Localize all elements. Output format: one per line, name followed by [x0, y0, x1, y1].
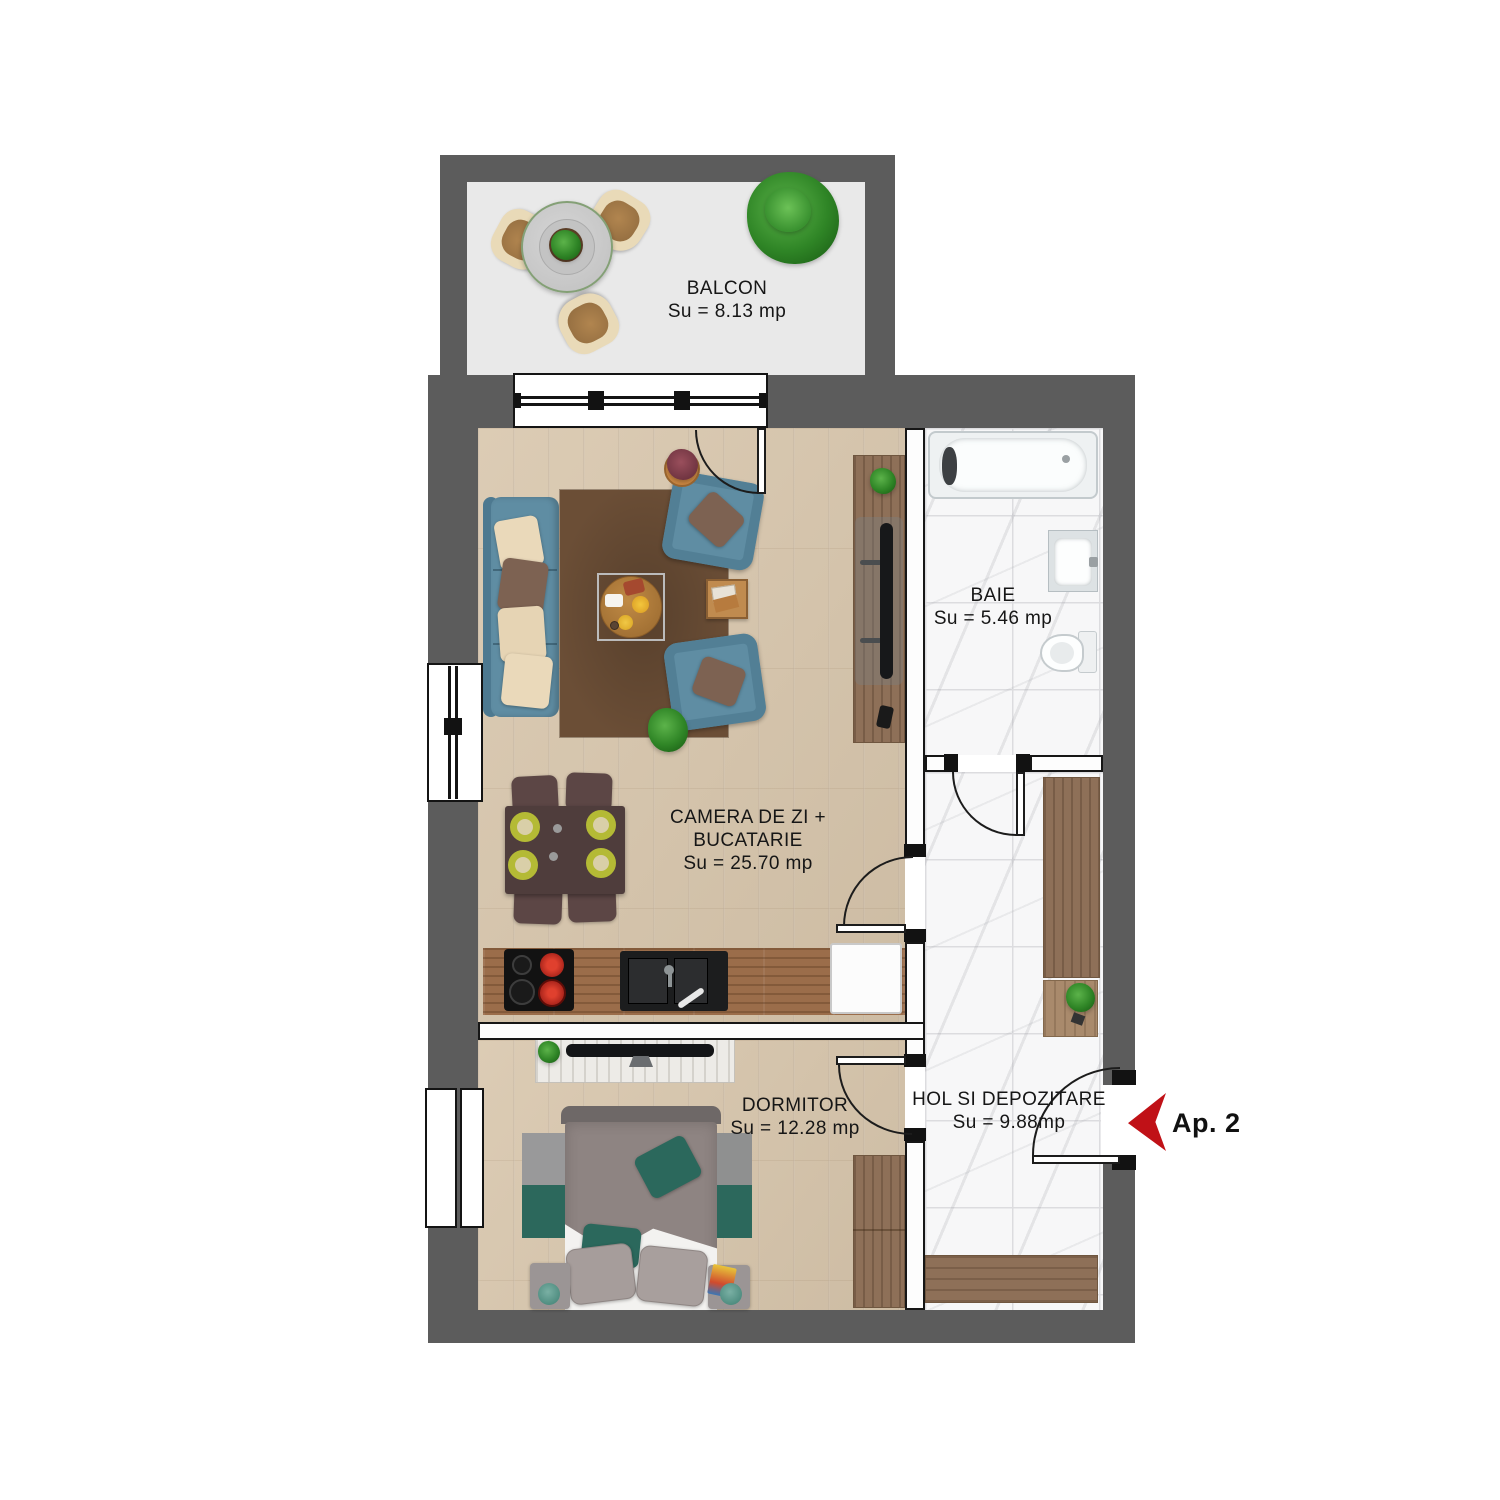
- toilet-seat: [1050, 642, 1074, 664]
- balcony-window: [513, 373, 768, 428]
- wall-living-bedroom: [478, 1022, 925, 1040]
- sink-basin: [1054, 538, 1092, 586]
- kitchen-appliance: [830, 943, 902, 1014]
- plate: [586, 848, 616, 878]
- sink-basin: [628, 958, 668, 1004]
- window-mullion: [588, 391, 604, 410]
- armchair-pillow: [691, 655, 748, 708]
- burner-hot: [538, 979, 566, 1007]
- toilet-bowl: [1040, 634, 1084, 672]
- bedroom-wardrobe: [853, 1155, 905, 1308]
- room-name: BAIE: [934, 584, 1052, 607]
- dresser-plant: [538, 1041, 560, 1063]
- window-rail: [516, 396, 765, 399]
- entrance-door-leaf: [1032, 1155, 1120, 1164]
- door-post: [1016, 754, 1030, 772]
- room-area: Su = 12.28 mp: [730, 1117, 859, 1140]
- balcony-door-leaf: [757, 428, 766, 494]
- wall-bottom: [428, 1310, 1135, 1343]
- room-label-living: CAMERA DE ZI + BUCATARIE Su = 25.70 mp: [670, 806, 826, 875]
- window-mullion: [674, 391, 690, 410]
- bedroom-window-pane: [460, 1088, 484, 1228]
- bed-pillow-gray: [635, 1245, 708, 1308]
- room-label-dormitor: DORMITOR Su = 12.28 mp: [730, 1094, 859, 1140]
- window-endcap: [759, 393, 766, 408]
- bathtub-faucet: [1062, 455, 1070, 463]
- living-door-leaf: [836, 924, 906, 933]
- wall-living-bath: [905, 428, 925, 846]
- fruit-bowl: [632, 596, 649, 613]
- bathroom-sink: [1048, 530, 1098, 592]
- armchair-pillow: [686, 489, 747, 550]
- room-name: BALCON: [668, 277, 786, 300]
- nightstand-lamp: [720, 1283, 742, 1305]
- window-endcap: [514, 393, 521, 408]
- floor-plant: [648, 708, 688, 752]
- nightstand-lamp: [538, 1283, 560, 1305]
- room-name: BUCATARIE: [670, 829, 826, 852]
- chair-seat: [562, 297, 613, 348]
- kitchen-sink: [620, 951, 728, 1011]
- cooktop: [504, 949, 574, 1011]
- room-label-hol: HOL SI DEPOZITARE Su = 9.88mp: [912, 1088, 1106, 1134]
- plate: [510, 812, 540, 842]
- plate: [508, 850, 538, 880]
- bathroom-door-leaf: [1016, 772, 1025, 836]
- table-plant: [667, 449, 698, 480]
- room-name: HOL SI DEPOZITARE: [912, 1088, 1106, 1111]
- hall-storage: [925, 1255, 1098, 1303]
- wall-bedroom-hall: [905, 1141, 925, 1310]
- room-area: Su = 9.88mp: [912, 1111, 1106, 1134]
- bedroom-tv: [566, 1044, 714, 1057]
- door-post: [904, 844, 926, 857]
- burner: [512, 955, 532, 975]
- bathtub: [928, 431, 1098, 499]
- bedroom-door-leaf: [836, 1056, 906, 1065]
- burner-hot: [540, 953, 564, 977]
- floor-plan-canvas: BALCON Su = 8.13 mp CAMERA DE ZI + BUCAT…: [0, 0, 1500, 1500]
- faucet-spout: [668, 973, 672, 987]
- bedroom-window-pane: [425, 1088, 457, 1228]
- room-label-balcon: BALCON Su = 8.13 mp: [668, 277, 786, 323]
- room-area: Su = 25.70 mp: [670, 852, 826, 875]
- door-post: [904, 929, 926, 942]
- serving-plate: [605, 594, 623, 607]
- burner: [509, 979, 535, 1005]
- room-area: Su = 5.46 mp: [934, 607, 1052, 630]
- sofa-pillow: [500, 653, 553, 710]
- door-post: [944, 754, 958, 772]
- bathtub-headrest: [942, 447, 957, 485]
- bathtub-basin: [939, 438, 1087, 492]
- plate: [586, 810, 616, 840]
- coffee-cup: [610, 621, 619, 630]
- wall-right: [1103, 375, 1135, 1343]
- fruit-bowl: [618, 615, 633, 630]
- window-rail: [516, 403, 765, 406]
- bed-pillow-gray: [565, 1242, 637, 1306]
- bed: [561, 1106, 721, 1310]
- cup: [553, 824, 562, 833]
- hall-wardrobe: [1043, 777, 1100, 978]
- room-area: Su = 8.13 mp: [668, 300, 786, 323]
- apartment-label: Ap. 2: [1172, 1108, 1241, 1139]
- window-mullion: [444, 718, 462, 735]
- balcony-plant-leaves: [765, 188, 811, 232]
- tv-arm: [860, 560, 882, 565]
- faucet: [1089, 557, 1098, 567]
- potted-plant: [551, 230, 581, 260]
- console-plant: [870, 468, 896, 494]
- hall-plant: [1066, 983, 1095, 1012]
- room-label-baie: BAIE Su = 5.46 mp: [934, 584, 1052, 630]
- tv-glass-panel: [855, 517, 903, 685]
- tv-arm: [860, 638, 882, 643]
- tv-screen: [880, 523, 893, 679]
- sofa: [483, 497, 559, 717]
- wall-bath-hall-right: [1030, 755, 1103, 772]
- wardrobe-divider: [853, 1229, 905, 1231]
- cup: [549, 852, 558, 861]
- room-name: CAMERA DE ZI +: [670, 806, 826, 829]
- room-name: DORMITOR: [730, 1094, 859, 1117]
